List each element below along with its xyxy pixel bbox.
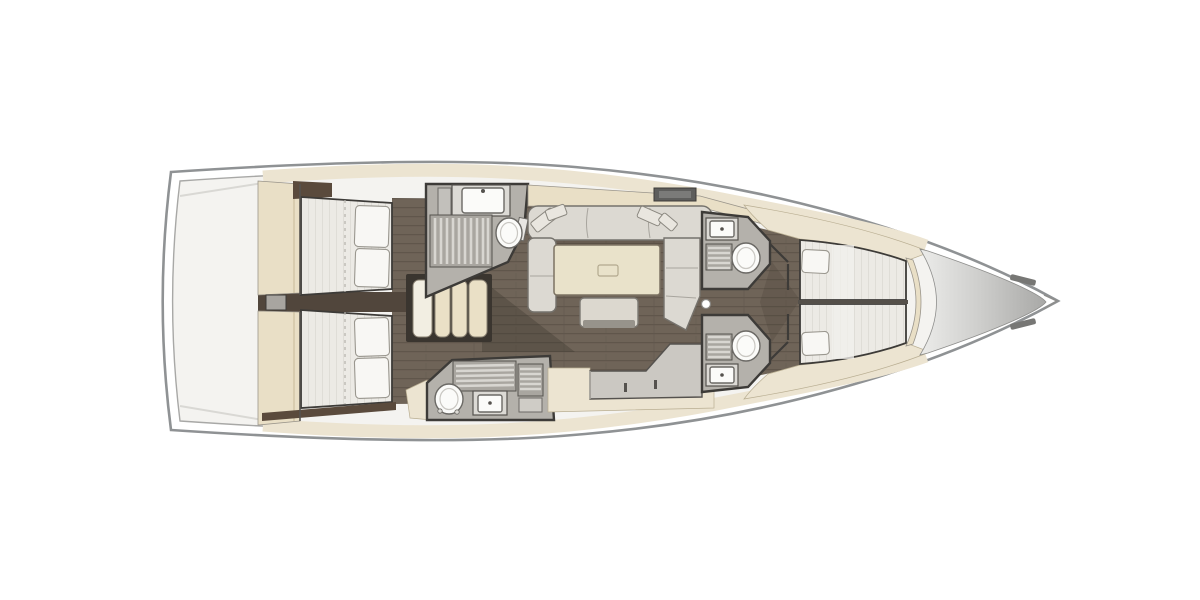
bench-base [583, 320, 635, 328]
faucet-icon [488, 401, 492, 405]
drawer-handle [654, 380, 657, 389]
shelf [519, 398, 542, 412]
pillow [801, 331, 829, 355]
pillow [801, 249, 829, 273]
shower-grate [706, 334, 732, 360]
hatch-inner [659, 191, 691, 198]
shower-grate [518, 364, 543, 396]
toilet-icon [435, 384, 463, 414]
shower-grate [430, 215, 492, 267]
shower-grate [706, 244, 732, 270]
walnut-shelf [293, 181, 332, 199]
pillow [354, 205, 389, 247]
corridor-step [266, 295, 286, 310]
floor-plan-drawing: transom-stern-area aft-double-cabin-port… [0, 0, 1200, 600]
toilet-icon [732, 331, 760, 361]
faucet-icon [720, 373, 724, 377]
faucet-icon [481, 189, 485, 193]
pillow [354, 248, 389, 287]
shelf [438, 188, 451, 215]
bow-locker: bow-anchor-locker [920, 249, 1057, 355]
sheet-fold [832, 305, 854, 359]
mast-post-icon [702, 300, 711, 309]
berth-divider [798, 300, 908, 304]
shower-grate [453, 361, 516, 391]
ottoman-bench [580, 298, 638, 328]
drawer-handle [624, 383, 627, 392]
aft-cabin-bottom: aft-double-cabin-starboard [258, 310, 396, 425]
floor-plan-canvas: transom-stern-area aft-double-cabin-port… [0, 0, 1200, 600]
toilet-icon [732, 243, 760, 273]
step [452, 280, 467, 337]
faucet-icon [720, 227, 724, 231]
step [469, 280, 487, 337]
sofa-left-chaise [528, 238, 556, 312]
dining-table [554, 245, 660, 295]
pillow [354, 317, 389, 356]
sheet-fold [832, 245, 854, 299]
pillow [354, 357, 389, 398]
